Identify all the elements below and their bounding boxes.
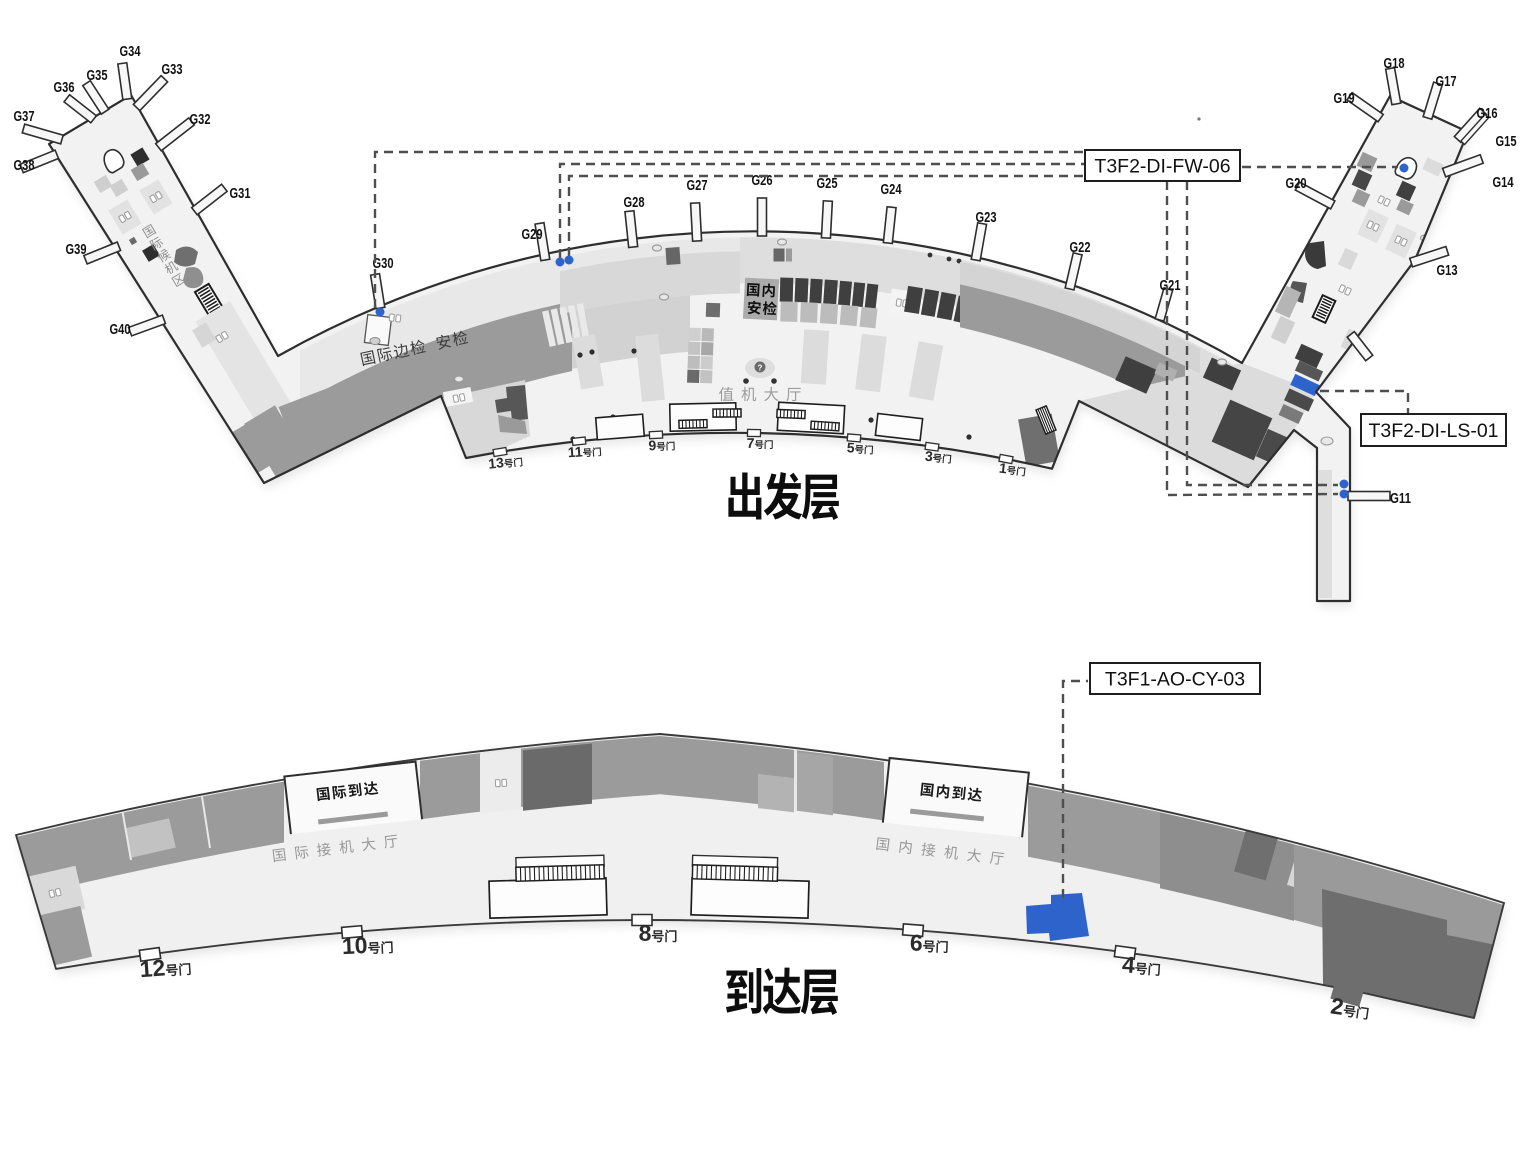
svg-text:G21: G21 [1160, 278, 1181, 294]
svg-text:T3F1-AO-CY-03: T3F1-AO-CY-03 [1105, 669, 1245, 691]
svg-text:G31: G31 [230, 186, 251, 202]
svg-text:T3F2-DI-FW-06: T3F2-DI-FW-06 [1094, 156, 1230, 178]
svg-text:G34: G34 [120, 44, 141, 60]
svg-text:G36: G36 [54, 80, 75, 96]
svg-text:T3F2-DI-LS-01: T3F2-DI-LS-01 [1368, 420, 1498, 442]
svg-text:G19: G19 [1334, 91, 1355, 107]
svg-text:G25: G25 [817, 176, 838, 192]
svg-text:G35: G35 [87, 68, 108, 84]
svg-text:G14: G14 [1493, 175, 1514, 191]
svg-text:G18: G18 [1384, 56, 1405, 72]
svg-text:G11: G11 [1390, 491, 1411, 507]
svg-text:G37: G37 [14, 109, 35, 125]
svg-text:G29: G29 [522, 227, 543, 243]
svg-text:G13: G13 [1437, 263, 1458, 279]
svg-text:G32: G32 [190, 112, 211, 128]
svg-text:G27: G27 [687, 178, 708, 194]
svg-text:G33: G33 [162, 62, 183, 78]
svg-text:G20: G20 [1286, 176, 1307, 192]
svg-text:G39: G39 [66, 242, 87, 258]
svg-text:G28: G28 [624, 195, 645, 211]
svg-text:G16: G16 [1477, 106, 1498, 122]
svg-text:G17: G17 [1436, 74, 1457, 90]
svg-text:G23: G23 [976, 210, 997, 226]
svg-text:G40: G40 [110, 322, 131, 338]
svg-text:G15: G15 [1496, 134, 1517, 150]
svg-text:G22: G22 [1070, 240, 1091, 256]
svg-text:G38: G38 [14, 158, 35, 174]
svg-text:G24: G24 [881, 182, 902, 198]
svg-text:?: ? [758, 364, 763, 373]
